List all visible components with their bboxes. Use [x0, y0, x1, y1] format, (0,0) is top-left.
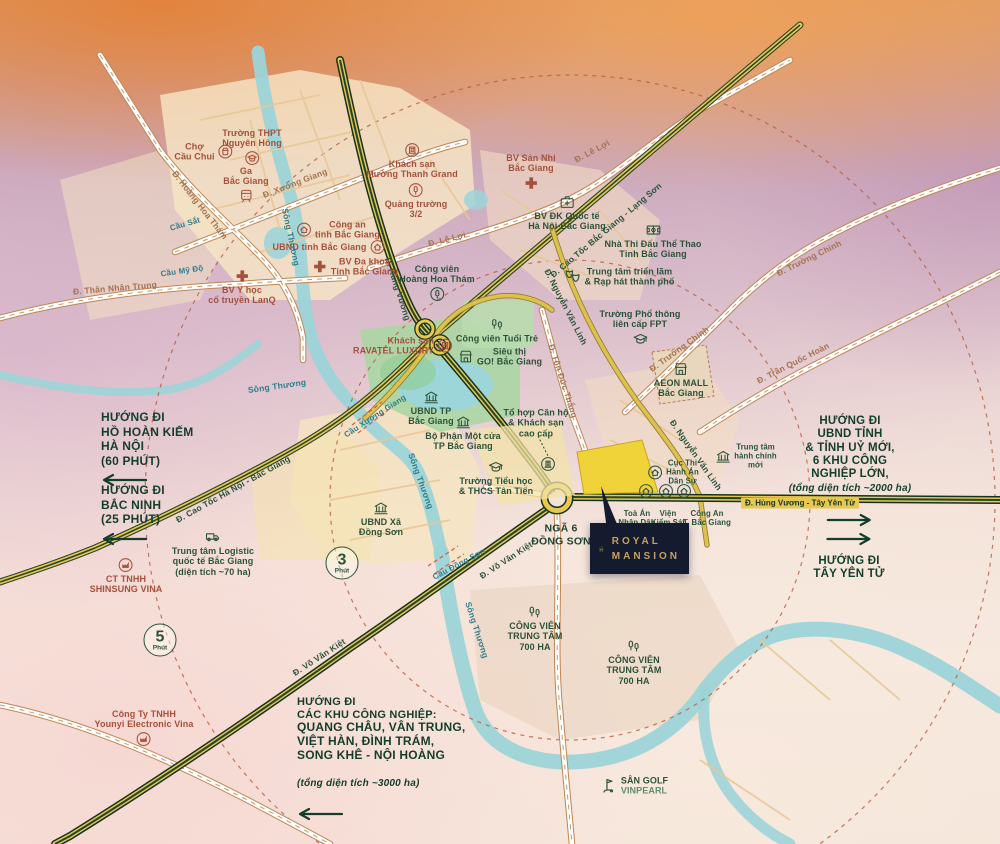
direction-bac-ninh: HƯỚNG ĐI BẮC NINH (25 PHÚT): [101, 469, 165, 560]
poi-cong-an-tinh: Công an tỉnh Bắc Giang: [296, 220, 380, 241]
direction-text: HƯỚNG ĐI CÁC KHU CÔNG NGHIỆP:: [297, 696, 437, 721]
poi-label: Quảng trường 3/2: [385, 199, 448, 220]
brand-line1: ROYAL: [612, 534, 680, 549]
government-house-icon: [638, 483, 654, 499]
royal-mansion-monogram-icon: [599, 534, 604, 564]
direction-khu-cong-nghiep: HƯỚNG ĐI CÁC KHU CÔNG NGHIỆP: QUANG CHÂU…: [297, 683, 465, 834]
brand-text: ROYAL MANSION: [612, 534, 680, 564]
poi-cv-tuoi-tre: Công viên Tuổi Trẻ: [456, 316, 538, 343]
left-arrow-icon: [297, 807, 343, 821]
school-icon: [244, 150, 260, 166]
poi-label: CÔNG VIÊN TRUNG TÂM 700 HA: [508, 621, 563, 652]
poi-san-golf-vinpearl: SÂN GOLFVINPEARL: [600, 776, 668, 797]
poi-label: CT TNHH SHINSUNG VINA: [90, 574, 163, 595]
poi-toa-an-marker: [638, 483, 654, 499]
poi-to-hop-can-ho: Tổ hợp Căn hộ & Khách sạn cao cấp: [503, 407, 568, 438]
brand-line2: MANSION: [612, 549, 680, 564]
park-tree-icon: [429, 286, 445, 302]
poi-nha-thi-dau: Nhà Thi Đấu Thể Thao Tỉnh Bắc Giang: [604, 222, 701, 260]
graduation-cap-icon: [488, 459, 504, 475]
government-house-icon: [658, 483, 674, 499]
civic-building-icon: [373, 500, 389, 516]
poi-bv-dk-quoc-te: BV ĐK Quốc tế Hà Nội-Bắc Giang: [528, 194, 606, 232]
poi-label: AEON MALL Bắc Giang: [654, 378, 708, 399]
poi-bv-san-nhi: BV Sản Nhi Bắc Giang: [506, 153, 556, 191]
poi-label: Công viên Tuổi Trẻ: [456, 333, 538, 343]
poi-label: UBND tỉnh Bắc Giang: [273, 242, 367, 252]
poi-cuc-thi-hanh-an: Cục Thi Hành Án Dân Sự: [647, 458, 699, 485]
factory-icon: [136, 731, 152, 747]
government-house-icon: [369, 239, 385, 255]
poi-bo-phan-mot-cua: Bộ Phận Một cửa TP Bắc Giang: [425, 414, 501, 452]
poi-bv-da-khoa: BV Đa khoa Tỉnh Bắc Giang: [312, 257, 398, 278]
poi-label: Trung tâm hành chính mới: [734, 442, 777, 469]
right-arrow-icon: [826, 532, 872, 546]
poi-label: Trường Phổ thông liên cấp FPT: [599, 309, 680, 330]
poi-label: Công An T. Bắc Giang: [683, 509, 731, 527]
golf-label-line1: SÂN GOLF: [621, 776, 668, 786]
civic-building-icon: [423, 389, 439, 405]
hospital-cross-icon: [523, 175, 539, 191]
government-house-icon: [647, 464, 663, 480]
poi-younyi-vina: Công Ty TNHH Younyi Electronic Vina: [95, 709, 194, 747]
poi-label: SÂN GOLFVINPEARL: [621, 776, 668, 797]
poi-cv-trung-tam-2: CÔNG VIÊN TRUNG TÂM 700 HA: [607, 638, 662, 686]
badge-number: 5: [156, 629, 165, 645]
civic-building-icon: [715, 448, 731, 464]
train-station-icon: [238, 188, 254, 204]
direction-text: HƯỚNG ĐI BẮC NINH (25 PHÚT): [101, 483, 165, 526]
badge-unit: Phút: [335, 567, 349, 574]
poi-sieu-thi-go: Siêu thị GO! Bắc Giang: [458, 347, 542, 368]
poi-label: Công Ty TNHH Younyi Electronic Vina: [95, 709, 194, 730]
poi-tt-hanh-chinh: Trung tâm hành chính mới: [715, 442, 777, 469]
location-map: Chợ Cầu Chui Trường THPT Nguyên Hồng Ga …: [0, 0, 1000, 844]
hospital-cross-icon: [312, 259, 328, 275]
direction-text: HƯỚNG ĐI HỒ HOÀN KIẾM HÀ NỘI (60 PHÚT): [101, 410, 193, 467]
poi-cv-hoang-hoa-tham: Công viên Hoàng Hoa Thám: [399, 264, 474, 302]
poi-truong-thpt-nguyen-hong: Trường THPT Nguyên Hồng: [222, 128, 282, 166]
tower-building-icon: [540, 456, 556, 472]
poi-vien-kiem-sat-marker: [658, 483, 674, 499]
poi-cv-trung-tam-1: CÔNG VIÊN TRUNG TÂM 700 HA: [508, 604, 563, 652]
poi-label: BV Đa khoa Tỉnh Bắc Giang: [331, 257, 398, 278]
direction-note: (tổng diện tích ~3000 ha): [297, 778, 465, 790]
mall-icon: [673, 361, 689, 377]
poi-label: Nhà Thi Đấu Thể Thao Tỉnh Bắc Giang: [604, 239, 701, 260]
poi-label: Trường Tiểu học & THCS Tân Tiến: [459, 476, 533, 497]
poi-aeon-mall: AEON MALL Bắc Giang: [654, 361, 708, 399]
poi-to-hop-icon-marker: [540, 456, 556, 472]
poi-tt-logistic: Trung tâm Logistic quốc tế Bắc Giang (di…: [172, 529, 254, 577]
poi-label: Ga Bắc Giang: [223, 166, 268, 187]
poi-label: Chợ Cầu Chui: [174, 142, 214, 163]
direction-text: HƯỚNG ĐI UBND TỈNH & TỈNH UỶ MỚI, 6 KHU …: [805, 415, 894, 480]
minutes-badge-5: 5 Phút: [144, 624, 177, 657]
golf-flag-icon: [600, 777, 618, 795]
poi-label: Trung tâm triển lãm & Rạp hát thành phố: [585, 267, 675, 288]
royal-mansion-logo: ROYAL MANSION: [590, 523, 689, 574]
trees-icon: [489, 316, 505, 332]
hospital-cross-icon: [234, 268, 250, 284]
left-arrow-icon: [101, 532, 147, 546]
direction-text: HƯỚNG ĐI TÂY YÊN TỬ: [813, 555, 884, 583]
poi-trien-lam: Trung tâm triển lãm & Rạp hát thành phố: [564, 267, 675, 288]
hotel-icon: [404, 142, 420, 158]
poi-label: Khách sạn Mường Thanh Grand: [366, 159, 458, 180]
police-house-icon: [296, 222, 312, 238]
first-aid-icon: [559, 194, 575, 210]
direction-note: (tổng diện tích ~2000 ha): [789, 483, 912, 495]
poi-ks-ravatel: Khách sạn RAVATEL LUXURY: [353, 336, 453, 357]
poi-label: Công viên Hoàng Hoa Thám: [399, 264, 474, 285]
poi-label: BV ĐK Quốc tế Hà Nội-Bắc Giang: [528, 211, 606, 232]
golf-label-line2: VINPEARL: [621, 786, 667, 796]
poi-ga-bac-giang: Ga Bắc Giang: [223, 166, 268, 204]
poi-cong-an-marker: [676, 483, 692, 499]
poi-shinsung-vina: CT TNHH SHINSUNG VINA: [90, 557, 163, 595]
direction-tay-yen-tu: HƯỚNG ĐI TÂY YÊN TỬ: [813, 518, 884, 596]
poi-ks-muong-thanh: Khách sạn Mường Thanh Grand: [366, 142, 458, 180]
poi-label: BV Sản Nhi Bắc Giang: [506, 153, 556, 174]
poi-ubnd-xa-dong-son: UBND Xã Đồng Sơn: [359, 500, 403, 538]
logistics-truck-icon: [205, 529, 221, 545]
government-house-icon: [676, 483, 692, 499]
trees-icon: [626, 638, 642, 654]
poi-label: Bộ Phận Một cửa TP Bắc Giang: [425, 431, 501, 452]
poi-label: Công an tỉnh Bắc Giang: [315, 220, 380, 241]
poi-label: Tổ hợp Căn hộ & Khách sạn cao cấp: [503, 407, 568, 438]
poi-quang-truong-32: Quảng trường 3/2: [385, 182, 448, 220]
civic-building-icon: [455, 414, 471, 430]
theater-masks-icon: [564, 268, 582, 286]
poi-label: CÔNG VIÊN TRUNG TÂM 700 HA: [607, 655, 662, 686]
poi-label: BV Y học cổ truyền LanQ: [208, 285, 275, 306]
supermarket-icon: [458, 349, 474, 365]
poi-label: Trung tâm Logistic quốc tế Bắc Giang (di…: [172, 546, 254, 577]
poi-label: Cục Thi Hành Án Dân Sự: [666, 458, 699, 485]
stadium-icon: [645, 222, 661, 238]
poi-label: Siêu thị GO! Bắc Giang: [477, 347, 542, 368]
junction-nga6-dong-son: NGÃ 6 ĐỒNG SƠN: [531, 522, 591, 547]
poi-label: Trường THPT Nguyên Hồng: [222, 128, 282, 149]
poi-ubnd-tinh: UBND tỉnh Bắc Giang: [273, 239, 386, 255]
poi-truong-fpt: Trường Phổ thông liên cấp FPT: [599, 309, 680, 347]
poi-truong-tieu-hoc: Trường Tiểu học & THCS Tân Tiến: [459, 459, 533, 497]
direction-text-bold: QUANG CHÂU, VÂN TRUNG, VIỆT HÀN, ĐÌNH TR…: [297, 721, 465, 763]
minutes-badge-3: 3 Phút: [326, 547, 359, 580]
poi-bv-y-hoc: BV Y học cổ truyền LanQ: [208, 268, 275, 306]
trees-icon: [527, 604, 543, 620]
hotel-icon: [437, 338, 453, 354]
poi-label: UBND Xã Đồng Sơn: [359, 517, 403, 538]
poi-cong-an-t-label: Công An T. Bắc Giang: [683, 509, 731, 527]
graduation-cap-icon: [632, 331, 648, 347]
square-tree-icon: [408, 182, 424, 198]
poi-label: Khách sạn RAVATEL LUXURY: [353, 336, 434, 357]
badge-unit: Phút: [153, 644, 167, 651]
badge-number: 3: [338, 552, 347, 568]
